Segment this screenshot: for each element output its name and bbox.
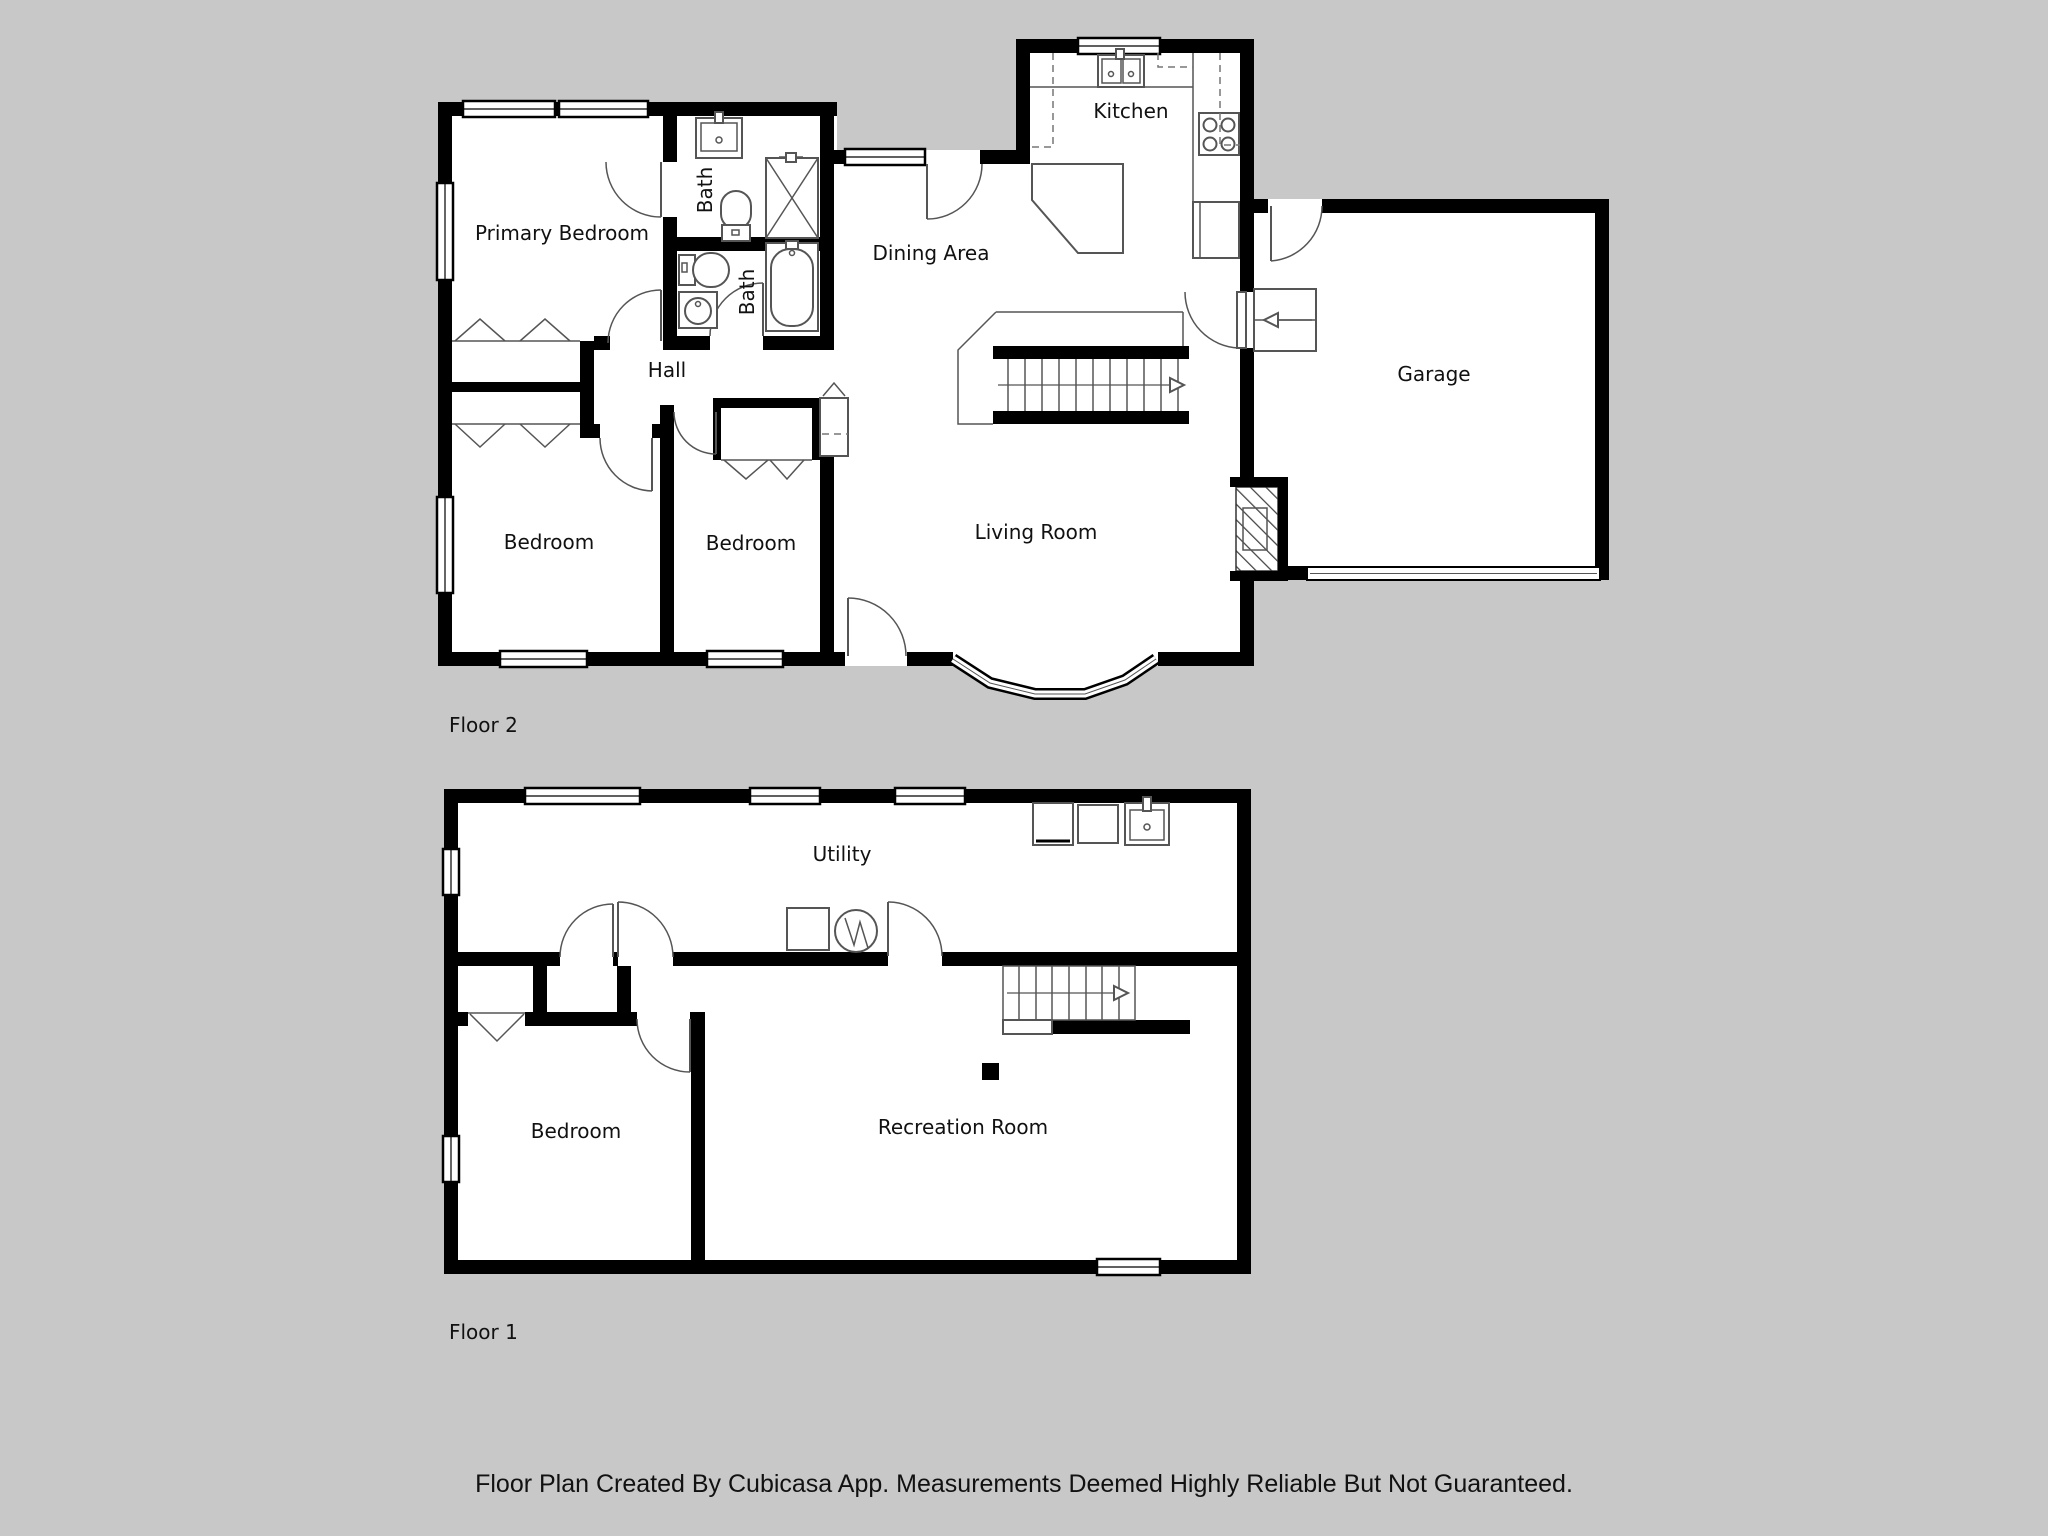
label-bedroom-left: Bedroom: [504, 530, 594, 554]
label-bedroom-middle: Bedroom: [706, 531, 796, 555]
furnace-icon: [835, 910, 877, 952]
floor1-plan: Utility Bedroom Recreation Room Floor 1: [443, 788, 1251, 1344]
water-heater-icon: [787, 908, 829, 950]
toilet-icon: [721, 191, 751, 241]
sink-icon: [696, 112, 742, 158]
support-post: [982, 1063, 999, 1080]
label-dining-area: Dining Area: [873, 241, 990, 265]
refrigerator-icon: [1193, 202, 1239, 258]
floor2-plan: Primary Bedroom Bath Bath Hall Bedroom B…: [437, 38, 1609, 737]
dryer-icon: [1078, 805, 1118, 843]
garage-door: [1307, 567, 1600, 580]
kitchen-sink-icon: [1098, 49, 1144, 87]
label-garage: Garage: [1397, 362, 1470, 386]
label-bath-upper: Bath: [693, 167, 717, 214]
label-utility: Utility: [813, 842, 872, 866]
fireplace: [1230, 477, 1288, 581]
floor1-caption: Floor 1: [449, 1320, 518, 1344]
washer-icon: [1033, 803, 1073, 845]
label-primary-bedroom: Primary Bedroom: [475, 221, 649, 245]
floor-plan-canvas: Primary Bedroom Bath Bath Hall Bedroom B…: [0, 0, 2048, 1536]
label-recreation-room: Recreation Room: [878, 1115, 1048, 1139]
label-living-room: Living Room: [975, 520, 1098, 544]
label-hall: Hall: [648, 358, 686, 382]
toilet-icon: [679, 253, 729, 287]
label-kitchen: Kitchen: [1093, 99, 1168, 123]
bathtub-icon: [766, 241, 818, 331]
disclaimer-caption: Floor Plan Created By Cubicasa App. Meas…: [475, 1470, 1573, 1498]
garage-entry-steps: [1254, 289, 1316, 351]
label-bedroom-floor1: Bedroom: [531, 1119, 621, 1143]
label-bath-lower: Bath: [735, 269, 759, 316]
sink-icon: [679, 292, 717, 328]
laundry-sink-icon: [1125, 797, 1169, 845]
shower-icon: [766, 153, 818, 238]
stove-icon: [1199, 113, 1239, 155]
floor-plan-page: Primary Bedroom Bath Bath Hall Bedroom B…: [0, 0, 2048, 1536]
floor2-caption: Floor 2: [449, 713, 518, 737]
